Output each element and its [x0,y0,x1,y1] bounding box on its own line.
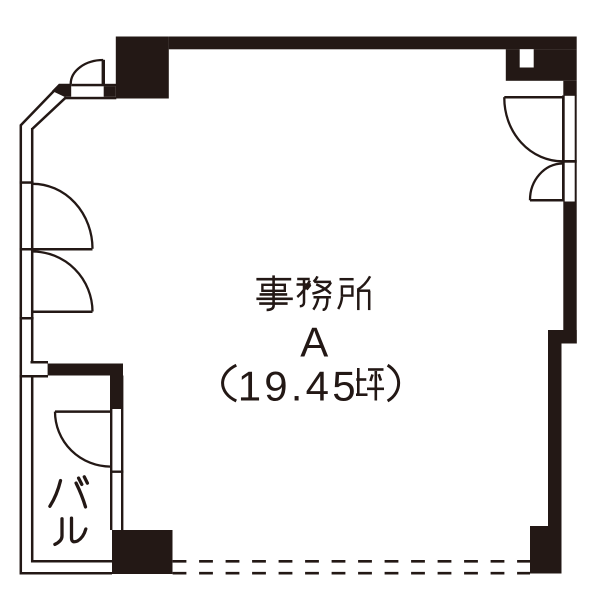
svg-text:19.45: 19.45 [238,362,359,409]
svg-text:A: A [300,319,328,366]
